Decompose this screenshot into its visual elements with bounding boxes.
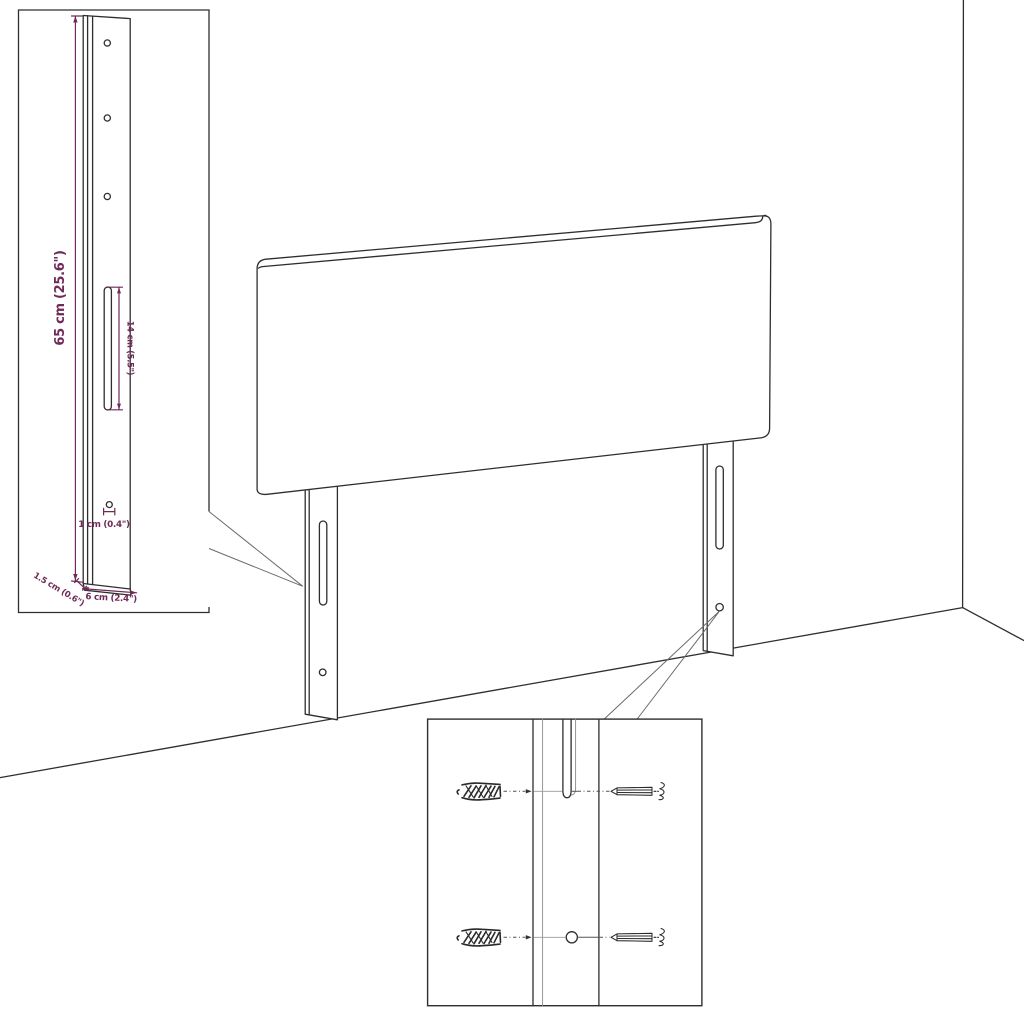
callout-wedge-to-hardware-inset [604,611,719,719]
headboard-panel [257,215,771,494]
hardware-inset-box [428,719,702,1006]
floor-line-right [963,608,1024,641]
headboard-drawing [209,215,771,719]
slot-length-label: 14 cm (5.5") [126,321,136,376]
right-mounting-leg [703,438,733,656]
callout-wedge-to-left-leg [209,512,303,587]
left-mounting-leg [305,485,337,720]
hardware-detail-inset [428,719,702,1006]
left-leg-outline [305,485,337,720]
panel-outline [257,216,771,495]
wall-corner-line [963,0,964,608]
leg-detail-inset: 65 cm (25.6") 14 cm (5.5") 1 cm (0.4") 1… [19,10,210,613]
hole-diameter-label: 1 cm (0.4") [78,520,130,530]
assembly-diagram-canvas: 65 cm (25.6") 14 cm (5.5") 1 cm (0.4") 1… [0,0,1024,1024]
leg-height-label: 65 cm (25.6") [53,250,68,345]
